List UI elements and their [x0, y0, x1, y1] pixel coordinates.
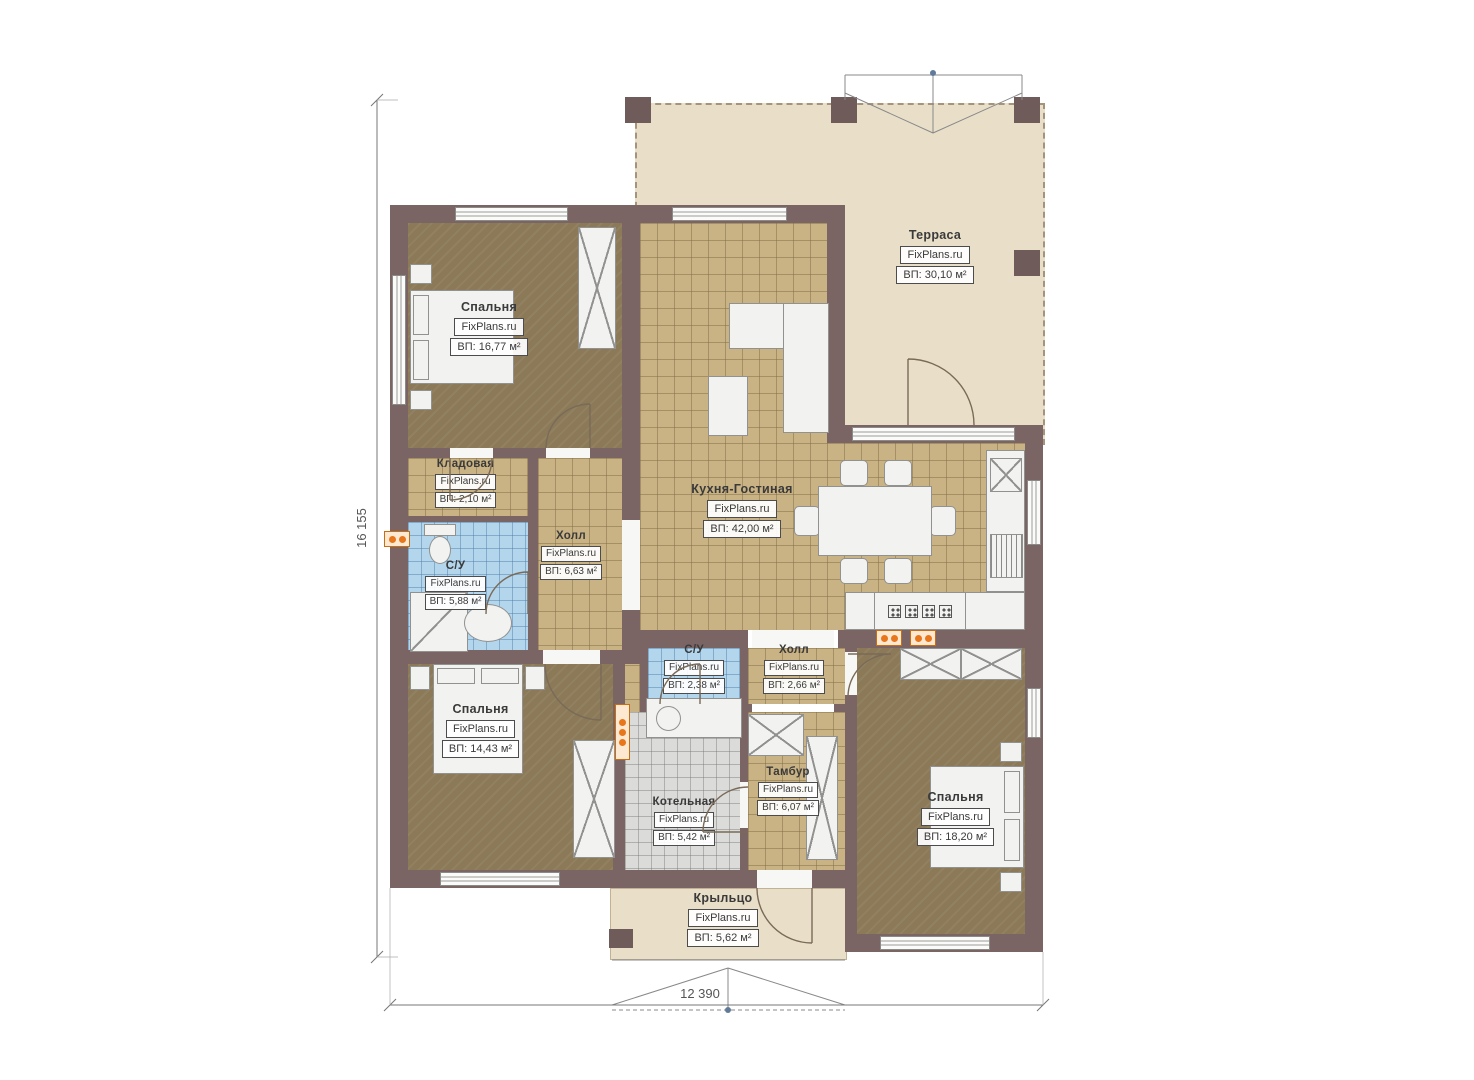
wall — [408, 448, 640, 458]
pillow — [481, 668, 519, 684]
door-opening — [546, 448, 590, 458]
room-name: С/У — [446, 560, 466, 572]
toilet — [424, 524, 456, 536]
nightstand — [410, 390, 432, 410]
room-name: Терраса — [909, 228, 961, 242]
wall — [622, 448, 640, 520]
room-name: Котельная — [653, 796, 716, 808]
room-label-bedroom3: Спальня FixPlans.ru ВП: 18,20 м² — [893, 790, 1018, 846]
dimension-height-label: 16 155 — [354, 508, 369, 548]
room-label-bathroom1: С/У FixPlans.ru ВП: 5,88 м² — [398, 560, 513, 610]
brand-label: FixPlans.ru — [707, 500, 776, 518]
chair — [930, 506, 956, 536]
room-area: ВП: 14,43 м² — [442, 740, 519, 758]
brand-label: FixPlans.ru — [764, 660, 824, 676]
brand-label: FixPlans.ru — [688, 909, 757, 927]
room-label-terrace: Терраса FixPlans.ru ВП: 30,10 м² — [870, 228, 1000, 284]
room-area: ВП: 30,10 м² — [896, 266, 973, 284]
window — [392, 275, 406, 405]
wall — [622, 205, 640, 448]
window — [880, 936, 990, 950]
column — [831, 97, 857, 123]
room-name: Спальня — [461, 300, 517, 314]
room-label-bathroom2: С/У FixPlans.ru ВП: 2,38 м² — [642, 644, 746, 694]
terrace-door-window — [852, 427, 1015, 441]
nightstand — [525, 666, 545, 690]
room-area: ВП: 6,07 м² — [757, 800, 819, 816]
brand-label: FixPlans.ru — [758, 782, 818, 798]
radiator — [384, 531, 410, 547]
radiator — [615, 704, 630, 760]
room-label-porch: Крыльцо FixPlans.ru ВП: 5,62 м² — [658, 891, 788, 947]
nightstand — [410, 264, 432, 284]
burner — [905, 605, 918, 618]
column — [625, 97, 651, 123]
brand-label: FixPlans.ru — [654, 812, 714, 828]
wardrobe — [900, 648, 961, 680]
wardrobe — [578, 227, 616, 349]
window — [455, 207, 568, 221]
step-marker-dot — [725, 1007, 731, 1013]
room-label-storage: Кладовая FixPlans.ru ВП: 2,10 м² — [403, 458, 528, 508]
wall — [600, 650, 640, 664]
nightstand — [410, 666, 430, 690]
dining-table — [818, 486, 932, 556]
burner — [922, 605, 935, 618]
room-name: Кухня-Гостиная — [691, 482, 792, 496]
radiator — [876, 630, 902, 646]
room-label-bedroom2: Спальня FixPlans.ru ВП: 14,43 м² — [418, 702, 543, 758]
burner — [939, 605, 952, 618]
step-marker-dot — [930, 70, 936, 76]
sofa — [783, 303, 829, 433]
wall — [740, 828, 748, 870]
nightstand — [1000, 742, 1022, 762]
radiator — [910, 630, 936, 646]
column — [1014, 97, 1040, 123]
room-name: Спальня — [927, 790, 983, 804]
room-label-bedroom1: Спальня FixPlans.ru ВП: 16,77 м² — [428, 300, 550, 356]
pillow — [413, 295, 429, 335]
dishwasher — [990, 534, 1023, 578]
wall — [408, 650, 543, 664]
room-label-hall1: Холл FixPlans.ru ВП: 6,63 м² — [515, 530, 627, 580]
brand-label: FixPlans.ru — [900, 246, 969, 264]
stove — [874, 592, 966, 630]
door-opening — [450, 448, 493, 458]
brand-label: FixPlans.ru — [446, 720, 515, 738]
wall — [408, 516, 528, 522]
door-opening — [757, 870, 812, 888]
boiler-circle — [656, 706, 681, 731]
room-label-hall2: Холл FixPlans.ru ВП: 2,66 м² — [742, 644, 846, 694]
wardrobe — [573, 740, 615, 858]
room-area: ВП: 18,20 м² — [917, 828, 994, 846]
chair — [840, 460, 868, 486]
room-name: Кладовая — [437, 458, 494, 470]
wall — [622, 610, 640, 654]
room-area: ВП: 5,42 м² — [653, 830, 715, 846]
door-opening — [543, 650, 600, 664]
room-name: Тамбур — [766, 766, 810, 778]
room-label-boiler: Котельная FixPlans.ru ВП: 5,42 м² — [628, 796, 740, 846]
room-area: ВП: 42,00 м² — [703, 520, 780, 538]
column — [1014, 250, 1040, 276]
burner — [888, 605, 901, 618]
brand-label: FixPlans.ru — [664, 660, 724, 676]
chair — [884, 558, 912, 584]
room-name: Холл — [779, 644, 809, 656]
chair — [884, 460, 912, 486]
room-name: Спальня — [452, 702, 508, 716]
room-area: ВП: 2,10 м² — [435, 492, 497, 508]
room-area: ВП: 5,62 м² — [687, 929, 758, 947]
pillow — [413, 340, 429, 380]
wardrobe — [961, 648, 1022, 680]
wall — [834, 704, 845, 712]
room-label-kitchen-living: Кухня-Гостиная FixPlans.ru ВП: 42,00 м² — [672, 482, 812, 538]
nightstand — [1000, 872, 1022, 892]
room-name: Холл — [556, 530, 586, 542]
room-name: С/У — [684, 644, 704, 656]
window — [440, 872, 560, 886]
window — [1027, 480, 1041, 545]
coffee-table — [708, 376, 748, 436]
window — [672, 207, 787, 221]
room-area: ВП: 2,66 м² — [763, 678, 825, 694]
room-area: ВП: 5,88 м² — [425, 594, 487, 610]
room-area: ВП: 16,77 м² — [450, 338, 527, 356]
window — [1027, 688, 1041, 738]
wall — [827, 205, 845, 443]
wardrobe — [748, 714, 804, 756]
column — [609, 929, 633, 948]
brand-label: FixPlans.ru — [921, 808, 990, 826]
dimension-width-label: 12 390 — [680, 986, 720, 1001]
fridge — [990, 458, 1022, 492]
brand-label: FixPlans.ru — [435, 474, 495, 490]
brand-label: FixPlans.ru — [454, 318, 523, 336]
chair — [840, 558, 868, 584]
room-area: ВП: 6,63 м² — [540, 564, 602, 580]
door-opening — [845, 652, 857, 695]
brand-label: FixPlans.ru — [425, 576, 485, 592]
room-label-vestibule: Тамбур FixPlans.ru ВП: 6,07 м² — [733, 766, 843, 816]
room-area: ВП: 2,38 м² — [663, 678, 725, 694]
brand-label: FixPlans.ru — [541, 546, 601, 562]
room-name: Крыльцо — [694, 891, 753, 905]
pillow — [437, 668, 475, 684]
porch-steps — [612, 960, 845, 1013]
floor-plan: Терраса FixPlans.ru ВП: 30,10 м² Спальня… — [0, 0, 1474, 1080]
